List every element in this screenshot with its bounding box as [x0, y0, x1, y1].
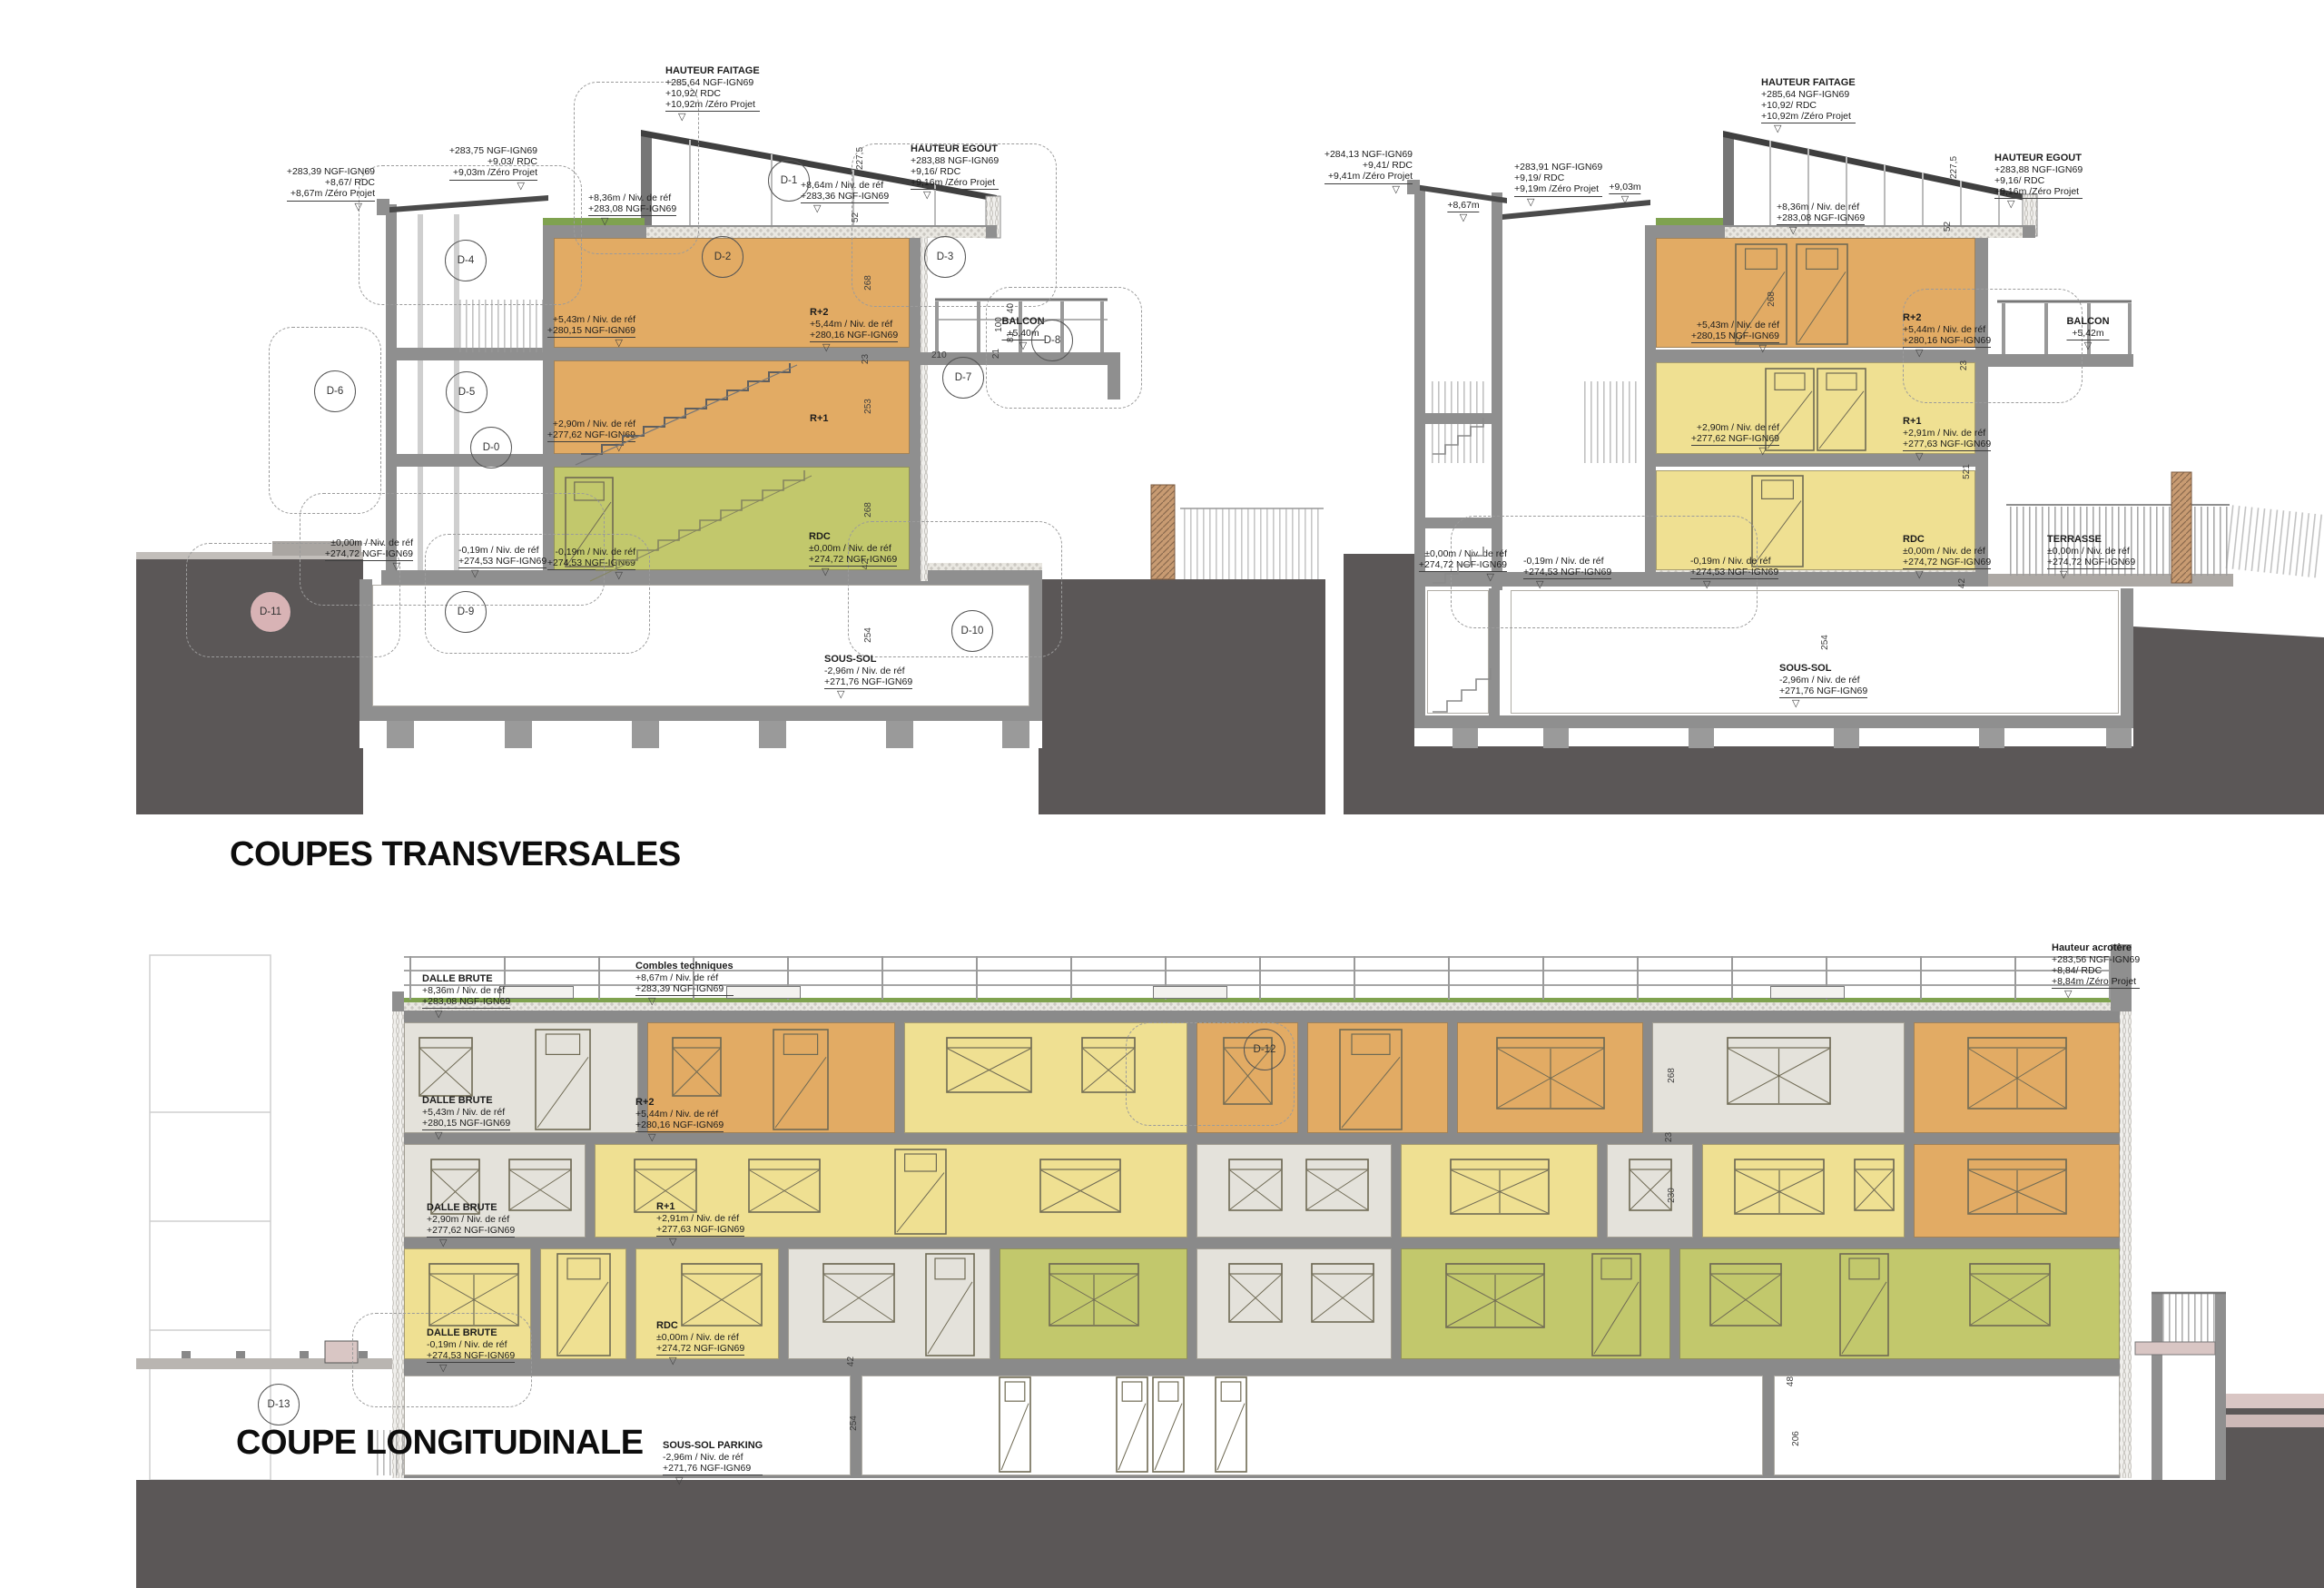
label-line: +10,92m /Zéro Projet [1761, 111, 1856, 122]
window-glyph [1228, 1263, 1283, 1323]
level-label: -0,19m / Niv. de réf+274,53 NGF-IGN69▽ [1523, 556, 1611, 579]
level-label: +8,36m / Niv. de réf+283,08 NGF-IGN69▽ [588, 192, 676, 216]
level-marker-icon: ▽ [813, 204, 821, 213]
label-line: +274,72 NGF-IGN69 [656, 1343, 744, 1354]
dimension-label: 253 [863, 399, 873, 414]
level-marker-icon: ▽ [1621, 195, 1629, 204]
detail-circle-d-9: D-9 [445, 591, 487, 633]
title-coupe-longitudinale: COUPE LONGITUDINALE [236, 1424, 644, 1463]
label-line: -2,96m / Niv. de réf [824, 666, 912, 676]
label-line: TERRASSE [2047, 534, 2135, 546]
window-glyph [1734, 1159, 1825, 1215]
label-line: +285,64 NGF-IGN69 [665, 77, 760, 88]
label-line: ±0,00m / Niv. de réf [1903, 546, 1991, 557]
level-label: ±0,00m / Niv. de réf+274,72 NGF-IGN69▽ [1419, 548, 1507, 572]
detail-outline [269, 327, 381, 514]
dimension-label: 254 [863, 627, 873, 643]
door-glyph [894, 1149, 947, 1235]
label-line: +9,16/ RDC [1994, 175, 2083, 186]
label-line: +283,88 NGF-IGN69 [911, 155, 999, 166]
window-glyph [1311, 1263, 1374, 1323]
label-line: +280,15 NGF-IGN69 [547, 325, 635, 336]
skylight [499, 986, 574, 999]
label-line: R+1 [810, 413, 829, 425]
window-glyph [1854, 1159, 1895, 1211]
label-line: +280,16 NGF-IGN69 [810, 330, 898, 340]
label-line: +274,53 NGF-IGN69 [547, 557, 635, 568]
window-glyph [1969, 1263, 2051, 1327]
level-marker-icon: ▽ [1774, 124, 1781, 133]
room [1196, 1248, 1392, 1359]
level-marker-icon: ▽ [1915, 349, 1923, 358]
door-glyph [1751, 475, 1804, 567]
label-line: RDC [656, 1320, 744, 1332]
room [788, 1248, 990, 1359]
label-line: HAUTEUR EGOUT [911, 143, 999, 155]
level-marker-icon: ▽ [2084, 341, 2092, 350]
level-marker-icon: ▽ [837, 690, 844, 699]
level-marker-icon: ▽ [1460, 213, 1467, 222]
detail-circle-d-10: D-10 [951, 610, 993, 652]
label-line: +5,43m / Niv. de réf [422, 1107, 510, 1118]
level-label: +283,91 NGF-IGN69+9,19/ RDC+9,19m /Zéro … [1514, 162, 1602, 197]
dimension-label: 206 [1791, 1431, 1801, 1446]
window-glyph [1967, 1037, 2067, 1110]
level-marker-icon: ▽ [2060, 570, 2067, 579]
level-marker-icon: ▽ [517, 182, 525, 191]
level-marker-icon: ▽ [1703, 580, 1710, 589]
label-line: ±0,00m / Niv. de réf [656, 1332, 744, 1343]
level-label: R+2+5,44m / Niv. de réf+280,16 NGF-IGN69… [635, 1097, 724, 1132]
skylight [1770, 986, 1845, 999]
level-label: +283,39 NGF-IGN69+8,67/ RDC+8,67m /Zéro … [287, 166, 375, 202]
label-line: +9,41/ RDC [1324, 160, 1413, 171]
window-glyph [748, 1159, 821, 1213]
label-line: +5,44m / Niv. de réf [635, 1109, 724, 1119]
label-line: +10,92/ RDC [1761, 100, 1856, 111]
level-label: DALLE BRUTE-0,19m / Niv. de réf+274,53 N… [427, 1327, 515, 1363]
window-glyph [1039, 1159, 1121, 1213]
level-label: -0,19m / Niv. de réf+274,53 NGF-IGN69▽ [547, 547, 635, 570]
label-line: +274,72 NGF-IGN69 [1903, 557, 1991, 567]
door-glyph [1339, 1029, 1403, 1130]
label-line: +8,36m / Niv. de réf [422, 985, 510, 996]
level-marker-icon: ▽ [669, 1238, 676, 1247]
dimension-label: 268 [863, 275, 873, 291]
level-label: RDC±0,00m / Niv. de réf+274,72 NGF-IGN69… [809, 531, 897, 567]
level-marker-icon: ▽ [678, 113, 685, 122]
detail-outline [359, 165, 582, 305]
label-line: DALLE BRUTE [427, 1327, 515, 1339]
label-line: DALLE BRUTE [422, 1095, 510, 1107]
window-glyph [1305, 1159, 1369, 1211]
door-glyph [1796, 243, 1848, 345]
label-line: +277,63 NGF-IGN69 [656, 1224, 744, 1235]
dimension-label: 100 [994, 317, 1004, 332]
drawing-canvas: HAUTEUR FAITAGE+285,64 NGF-IGN69+10,92/ … [0, 0, 2324, 1588]
detail-circle-d-4: D-4 [445, 240, 487, 281]
window-glyph [1967, 1159, 2067, 1215]
roof-railing-post [1448, 956, 1450, 1000]
label-line: +9,16/ RDC [911, 166, 999, 177]
label-line: +283,08 NGF-IGN69 [1777, 212, 1865, 223]
level-label: HAUTEUR EGOUT+283,88 NGF-IGN69+9,16/ RDC… [1994, 153, 2083, 199]
dimension-label: 52 [1943, 222, 1953, 232]
label-line: ±0,00m / Niv. de réf [809, 543, 897, 554]
label-line: RDC [809, 531, 897, 543]
label-line: -0,19m / Niv. de réf [458, 545, 547, 556]
label-line: R+1 [656, 1201, 744, 1213]
annotation-layer: HAUTEUR FAITAGE+285,64 NGF-IGN69+10,92/ … [0, 0, 2324, 1588]
label-line: +2,90m / Niv. de réf [547, 419, 635, 429]
label-line: +274,72 NGF-IGN69 [809, 554, 897, 565]
level-marker-icon: ▽ [435, 1131, 442, 1140]
level-label: RDC±0,00m / Niv. de réf+274,72 NGF-IGN69… [1903, 534, 1991, 569]
room [540, 1248, 626, 1359]
window-glyph [1709, 1263, 1782, 1327]
roof-railing-post [1637, 956, 1639, 1000]
level-label: R+2+5,44m / Niv. de réf+280,16 NGF-IGN69… [810, 307, 898, 342]
level-label: Hauteur acrotère+283,56 NGF-IGN69+8,84/ … [2052, 942, 2140, 989]
room [1307, 1022, 1448, 1133]
room [1679, 1248, 2120, 1359]
level-label: +8,67m▽ [1447, 200, 1479, 212]
roof-railing-post [598, 956, 600, 1000]
label-line: +285,64 NGF-IGN69 [1761, 89, 1856, 100]
label-line: R+2 [1903, 312, 1991, 324]
label-line: +5,44m / Niv. de réf [1903, 324, 1991, 335]
level-marker-icon: ▽ [1487, 573, 1494, 582]
detail-circle-d-0: D-0 [470, 427, 512, 469]
label-line: -2,96m / Niv. de réf [1779, 675, 1867, 686]
label-line: +277,62 NGF-IGN69 [1691, 433, 1779, 444]
label-line: R+2 [810, 307, 898, 319]
level-label: +5,43m / Niv. de réf+280,15 NGF-IGN69▽ [547, 314, 635, 338]
door-glyph [925, 1253, 975, 1356]
label-line: +8,36m / Niv. de réf [588, 192, 676, 203]
level-marker-icon: ▽ [2064, 990, 2072, 999]
level-label: HAUTEUR FAITAGE+285,64 NGF-IGN69+10,92/ … [1761, 77, 1856, 123]
level-label: HAUTEUR FAITAGE+285,64 NGF-IGN69+10,92/ … [665, 65, 760, 112]
label-line: R+1 [1903, 416, 1991, 428]
label-line: +8,67/ RDC [287, 177, 375, 188]
label-line: +274,72 NGF-IGN69 [2047, 557, 2135, 567]
level-marker-icon: ▽ [601, 217, 608, 226]
level-label: R+1 [810, 413, 829, 425]
label-line: +8,84m /Zéro Projet [2052, 976, 2140, 987]
detail-circle-d-6: D-6 [314, 370, 356, 412]
dimension-label: 48 [1786, 1376, 1796, 1386]
level-marker-icon: ▽ [1789, 226, 1797, 235]
dimension-label: 227,5 [1949, 156, 1959, 179]
dimension-label: 254 [1820, 635, 1830, 650]
roof-railing-post [1542, 956, 1544, 1000]
label-line: -2,96m / Niv. de réf [663, 1452, 763, 1463]
level-marker-icon: ▽ [1759, 344, 1767, 353]
level-label: SOUS-SOL PARKING-2,96m / Niv. de réf+271… [663, 1440, 763, 1475]
dimension-label: 210 [931, 350, 947, 360]
room [1914, 1144, 2120, 1238]
dimension-label: 268 [1667, 1068, 1677, 1083]
level-marker-icon: ▽ [439, 1238, 447, 1248]
label-line: +277,63 NGF-IGN69 [1903, 439, 1991, 449]
label-line: +284,13 NGF-IGN69 [1324, 149, 1413, 160]
label-line: Combles techniques [635, 961, 734, 972]
title-coupes-transversales: COUPES TRANSVERSALES [230, 835, 681, 874]
level-label: +8,64m / Niv. de réf+283,36 NGF-IGN69▽ [801, 180, 889, 203]
label-line: +277,62 NGF-IGN69 [547, 429, 635, 440]
level-marker-icon: ▽ [822, 343, 830, 352]
level-label: +9,03m▽ [1609, 182, 1640, 194]
label-line: +283,75 NGF-IGN69 [449, 145, 537, 156]
roof-railing-post [409, 956, 411, 1000]
label-line: +9,03m [1609, 182, 1640, 192]
window-glyph [1445, 1263, 1545, 1328]
label-line: +274,53 NGF-IGN69 [1523, 567, 1611, 577]
label-line: +277,62 NGF-IGN69 [427, 1225, 515, 1236]
label-line: +8,67m [1447, 200, 1479, 211]
level-marker-icon: ▽ [669, 1356, 676, 1366]
dimension-label: 230 [1667, 1188, 1677, 1203]
label-line: BALCON [2066, 316, 2109, 328]
label-line: +8,67m /Zéro Projet [287, 188, 375, 199]
label-line: HAUTEUR EGOUT [1994, 153, 2083, 164]
label-line: +8,67m / Niv. de réf [635, 972, 734, 983]
label-line: +283,08 NGF-IGN69 [588, 203, 676, 214]
roof-railing-post [1070, 956, 1072, 1000]
level-label: -0,19m / Niv. de réf+274,53 NGF-IGN69▽ [1690, 556, 1778, 579]
label-line: +8,36m / Niv. de réf [1777, 202, 1865, 212]
window-glyph [822, 1263, 895, 1323]
skylight [726, 986, 801, 999]
level-label: BALCON+5,42m▽ [2066, 316, 2109, 340]
level-marker-icon: ▽ [1393, 185, 1400, 194]
level-marker-icon: ▽ [1536, 580, 1543, 589]
label-line: +271,76 NGF-IGN69 [824, 676, 912, 687]
label-line: +274,53 NGF-IGN69 [1690, 567, 1778, 577]
label-line: +5,43m / Niv. de réf [547, 314, 635, 325]
detail-circle-d-3: D-3 [924, 236, 966, 278]
label-line: +283,39 NGF-IGN69 [287, 166, 375, 177]
roof-railing-post [2014, 956, 2016, 1000]
level-marker-icon: ▽ [435, 1010, 442, 1019]
detail-circle-d-11: D-11 [250, 591, 291, 633]
label-line: +8,64m / Niv. de réf [801, 180, 889, 191]
level-label: TERRASSE±0,00m / Niv. de réf+274,72 NGF-… [2047, 534, 2135, 569]
dimension-label: 268 [863, 502, 873, 518]
window-glyph [1727, 1037, 1831, 1105]
roof-railing-post [1731, 956, 1733, 1000]
level-label: R+1+2,91m / Niv. de réf+277,63 NGF-IGN69… [656, 1201, 744, 1237]
detail-circle-d-12: D-12 [1244, 1029, 1285, 1070]
level-marker-icon: ▽ [393, 562, 400, 571]
detail-circle-d-8: D-8 [1031, 320, 1073, 361]
dimension-label: 40 [1006, 303, 1016, 313]
door-glyph [1116, 1376, 1148, 1473]
label-line: DALLE BRUTE [427, 1202, 515, 1214]
roof-railing-line [404, 956, 2111, 958]
label-line: +8,84/ RDC [2052, 965, 2140, 976]
level-label: +8,36m / Niv. de réf+283,08 NGF-IGN69▽ [1777, 202, 1865, 225]
dimension-label: 227,5 [855, 147, 865, 170]
label-line: HAUTEUR FAITAGE [665, 65, 760, 77]
label-line: +9,19/ RDC [1514, 173, 1602, 183]
label-line: +9,16m /Zéro Projet [911, 177, 999, 188]
window-glyph [1629, 1159, 1672, 1211]
level-marker-icon: ▽ [648, 1133, 655, 1142]
label-line: +9,19m /Zéro Projet [1514, 183, 1602, 194]
level-marker-icon: ▽ [1915, 452, 1923, 461]
label-line: +5,43m / Niv. de réf [1691, 320, 1779, 330]
room [1457, 1022, 1643, 1133]
level-marker-icon: ▽ [822, 567, 829, 577]
dimension-label: 254 [849, 1415, 859, 1431]
window-glyph [419, 1037, 473, 1097]
level-label: +2,90m / Niv. de réf+277,62 NGF-IGN69▽ [547, 419, 635, 442]
label-line: +280,15 NGF-IGN69 [1691, 330, 1779, 341]
level-label: DALLE BRUTE+5,43m / Niv. de réf+280,15 N… [422, 1095, 510, 1130]
level-label: SOUS-SOL-2,96m / Niv. de réf+271,76 NGF-… [1779, 663, 1867, 698]
door-glyph [1152, 1376, 1185, 1473]
label-line: Hauteur acrotère [2052, 942, 2140, 954]
label-line: +2,91m / Niv. de réf [1903, 428, 1991, 439]
level-label: R+1+2,91m / Niv. de réf+277,63 NGF-IGN69… [1903, 416, 1991, 451]
label-line: RDC [1903, 534, 1991, 546]
door-glyph [773, 1029, 829, 1130]
window-glyph [681, 1263, 763, 1327]
label-line: +280,15 NGF-IGN69 [422, 1118, 510, 1129]
label-line: ±0,00m / Niv. de réf [2047, 546, 2135, 557]
dimension-label: 52 [851, 212, 861, 222]
label-line: ±0,00m / Niv. de réf [325, 538, 413, 548]
label-line: +283,36 NGF-IGN69 [801, 191, 889, 202]
label-line: +271,76 NGF-IGN69 [663, 1463, 763, 1474]
label-line: +283,56 NGF-IGN69 [2052, 954, 2140, 965]
dimension-label: 42 [861, 559, 871, 569]
label-line: SOUS-SOL PARKING [663, 1440, 763, 1452]
level-label: DALLE BRUTE+8,36m / Niv. de réf+283,08 N… [422, 973, 510, 1009]
label-line: SOUS-SOL [1779, 663, 1867, 675]
door-glyph [1839, 1253, 1889, 1356]
label-line: R+2 [635, 1097, 724, 1109]
level-label: R+2+5,44m / Niv. de réf+280,16 NGF-IGN69… [1903, 312, 1991, 348]
label-line: +10,92m /Zéro Projet [665, 99, 760, 110]
label-line: +10,92/ RDC [665, 88, 760, 99]
label-line: +274,53 NGF-IGN69 [427, 1350, 515, 1361]
label-line: +280,16 NGF-IGN69 [635, 1119, 724, 1130]
door-glyph [556, 1253, 611, 1356]
label-line: +283,39 NGF-IGN69 [635, 983, 734, 994]
label-line: +2,90m / Niv. de réf [1691, 422, 1779, 433]
label-line: +9,41m /Zéro Projet [1324, 171, 1413, 182]
room [1607, 1144, 1693, 1238]
room [1774, 1376, 2120, 1475]
level-label: HAUTEUR EGOUT+283,88 NGF-IGN69+9,16/ RDC… [911, 143, 999, 190]
level-marker-icon: ▽ [1792, 699, 1799, 708]
skylight [1153, 986, 1227, 999]
label-line: +5,42m [2066, 328, 2109, 339]
level-label: +283,75 NGF-IGN69+9,03/ RDC+9,03m /Zéro … [449, 145, 537, 181]
label-line: +280,16 NGF-IGN69 [1903, 335, 1991, 346]
detail-circle-d-5: D-5 [446, 371, 487, 413]
level-marker-icon: ▽ [471, 569, 478, 578]
window-glyph [946, 1037, 1032, 1093]
label-line: +274,53 NGF-IGN69 [458, 556, 547, 567]
roof-railing-post [881, 956, 883, 1000]
label-line: +9,16m /Zéro Projet [1994, 186, 2083, 197]
label-line: +9,03m /Zéro Projet [449, 167, 537, 178]
level-marker-icon: ▽ [355, 202, 362, 212]
window-glyph [1450, 1159, 1550, 1215]
door-glyph [1215, 1376, 1247, 1473]
level-label: -0,19m / Niv. de réf+274,53 NGF-IGN69▽ [458, 545, 547, 568]
label-line: -0,19m / Niv. de réf [427, 1339, 515, 1350]
label-line: +283,88 NGF-IGN69 [1994, 164, 2083, 175]
level-marker-icon: ▽ [615, 339, 623, 348]
label-line: ±0,00m / Niv. de réf [1419, 548, 1507, 559]
label-line: +283,08 NGF-IGN69 [422, 996, 510, 1007]
dimension-label: 521 [1962, 464, 1972, 479]
level-label: SOUS-SOL-2,96m / Niv. de réf+271,76 NGF-… [824, 654, 912, 689]
level-label: Combles techniques+8,67m / Niv. de réf+2… [635, 961, 734, 996]
door-glyph [1817, 368, 1866, 451]
level-marker-icon: ▽ [615, 571, 623, 580]
dimension-label: 268 [1767, 291, 1777, 307]
dimension-label: 81 [1006, 332, 1016, 342]
room [1652, 1022, 1905, 1133]
detail-circle-d-13: D-13 [258, 1384, 300, 1425]
dimension-label: 23 [1664, 1132, 1674, 1142]
room [1000, 1248, 1187, 1359]
label-line: -0,19m / Niv. de réf [1523, 556, 1611, 567]
window-glyph [508, 1159, 572, 1211]
dimension-label: 42 [846, 1356, 856, 1366]
level-marker-icon: ▽ [1019, 341, 1027, 350]
door-glyph [535, 1029, 591, 1130]
window-glyph [1049, 1263, 1139, 1327]
label-line: +271,76 NGF-IGN69 [1779, 686, 1867, 696]
label-line: DALLE BRUTE [422, 973, 510, 985]
level-label: ±0,00m / Niv. de réf+274,72 NGF-IGN69▽ [325, 538, 413, 561]
dimension-label: 42 [1957, 578, 1967, 588]
roof-railing-post [1259, 956, 1261, 1000]
room [1401, 1248, 1670, 1359]
roof-railing-post [976, 956, 978, 1000]
window-glyph [672, 1037, 722, 1097]
level-marker-icon: ▽ [439, 1364, 447, 1373]
label-line: +2,90m / Niv. de réf [427, 1214, 515, 1225]
label-line: +9,03/ RDC [449, 156, 537, 167]
level-label: +284,13 NGF-IGN69+9,41/ RDC+9,41m /Zéro … [1324, 149, 1413, 184]
dimension-label: 23 [1959, 360, 1969, 370]
level-label: DALLE BRUTE+2,90m / Niv. de réf+277,62 N… [427, 1202, 515, 1238]
label-line: HAUTEUR FAITAGE [1761, 77, 1856, 89]
label-line: -0,19m / Niv. de réf [547, 547, 635, 557]
level-marker-icon: ▽ [923, 191, 931, 200]
level-marker-icon: ▽ [1759, 447, 1767, 456]
detail-circle-d-1: D-1 [768, 160, 810, 202]
room [862, 1376, 1763, 1475]
level-label: +5,43m / Niv. de réf+280,15 NGF-IGN69▽ [1691, 320, 1779, 343]
room [1401, 1144, 1598, 1238]
detail-circle-d-7: D-7 [942, 357, 984, 399]
level-marker-icon: ▽ [648, 997, 655, 1006]
level-label: RDC±0,00m / Niv. de réf+274,72 NGF-IGN69… [656, 1320, 744, 1356]
level-marker-icon: ▽ [2007, 200, 2014, 209]
door-glyph [999, 1376, 1031, 1473]
level-marker-icon: ▽ [615, 443, 623, 452]
label-line: +5,44m / Niv. de réf [810, 319, 898, 330]
